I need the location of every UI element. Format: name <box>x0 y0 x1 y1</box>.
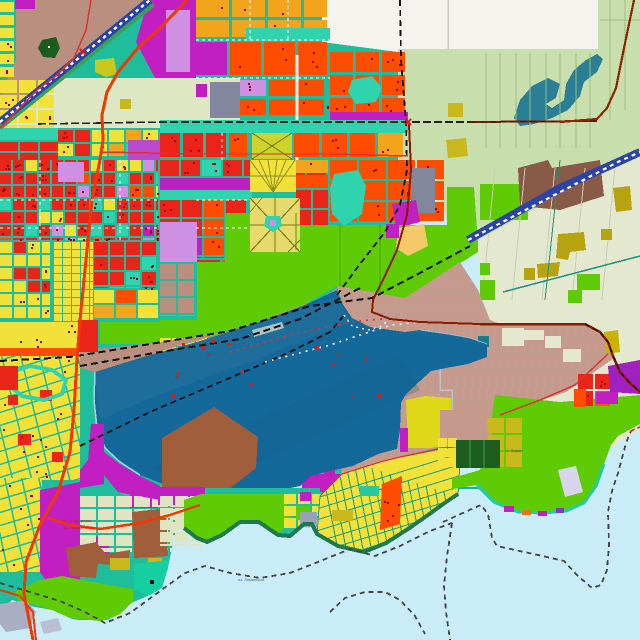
svg-text:оз. Лиманское: оз. Лиманское <box>238 577 265 582</box>
svg-text:ул. Набережная: ул. Набережная <box>64 525 94 530</box>
svg-text:ул. Приморская: ул. Приморская <box>62 518 91 523</box>
svg-text:ст. Лиман: ст. Лиман <box>505 448 523 453</box>
